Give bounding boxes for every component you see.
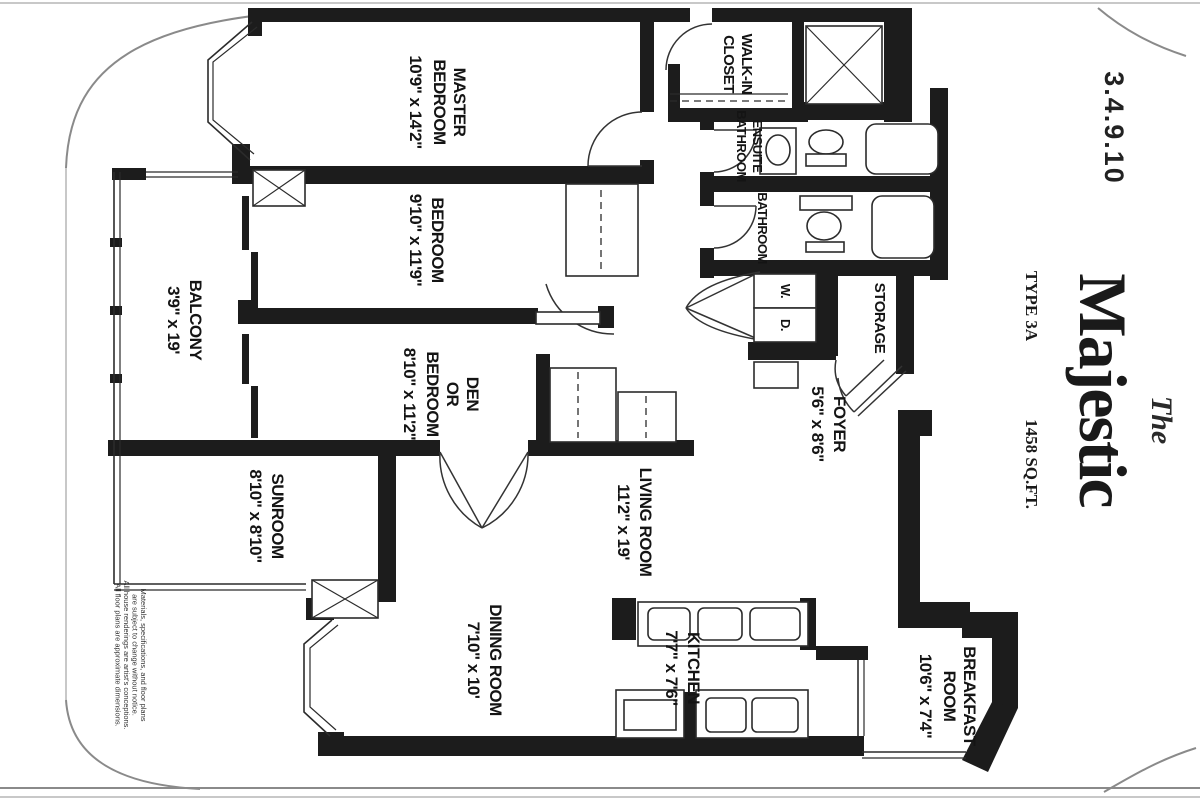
room-name-line: BALCONY — [186, 280, 205, 362]
room-name-line: BATHROOM — [734, 110, 749, 182]
master-bedroom-door-arc — [588, 112, 642, 166]
bathroom-tub — [872, 196, 934, 258]
room-name-line: BEDROOM — [423, 351, 442, 437]
kitchen-appliance-4 — [706, 698, 746, 732]
hall-partition — [536, 312, 600, 324]
brand-name-text: Majestic — [1065, 273, 1141, 507]
room-label-bedroom: BEDROOM 9'10" x 11'9" — [406, 194, 447, 286]
room-label-den: DEN OR BEDROOM 8'10" x 11'2" — [400, 348, 482, 440]
bathroom-door-arc — [714, 206, 756, 248]
room-label-dining-room: DINING ROOM 7'10" x 10' — [464, 604, 505, 716]
room-label-storage: STORAGE — [871, 283, 888, 354]
kitchen-appliance-3 — [750, 608, 800, 640]
unit-numbers: 3.4.9.10 — [1099, 71, 1129, 185]
room-name-line: FOYER — [830, 396, 849, 452]
ensuite-toilet-tank — [806, 154, 846, 166]
unit-numbers-text: 3.4.9.10 — [1099, 71, 1129, 185]
room-label-balcony: BALCONY 3'9" x 19' — [164, 280, 205, 362]
room-label-ensuite-bathroom: ENSUITE BATHROOM — [734, 110, 765, 182]
room-name-line: DEN — [463, 377, 482, 412]
room-name-line: MASTER — [450, 68, 469, 137]
den-french-door-leaf-right — [482, 452, 528, 528]
room-name-line: SUNROOM — [268, 473, 287, 559]
bathroom-vanity — [800, 196, 852, 210]
floor-plan-page: MASTER BEDROOM 10'9" x 14'2" BEDROOM 9'1… — [0, 0, 1200, 805]
room-dims: 8'10" x 8'10" — [246, 469, 265, 562]
plan-area: 1458 SQ.FT. — [1022, 419, 1041, 509]
room-label-master-bedroom: MASTER BEDROOM 10'9" x 14'2" — [406, 55, 469, 148]
plan-type: TYPE 3A — [1022, 271, 1041, 342]
brand-the: The — [1145, 396, 1178, 444]
ensuite-sink — [766, 135, 790, 165]
living-double-door-leaf-bottom — [686, 308, 760, 340]
room-name-line: STORAGE — [871, 283, 888, 354]
corner-arc-bottom-right — [1104, 748, 1196, 792]
floor-plan-drawing: MASTER BEDROOM 10'9" x 14'2" BEDROOM 9'1… — [0, 0, 1200, 805]
room-dims: 7'10" x 10' — [464, 622, 483, 699]
washer-text: W. — [778, 284, 793, 298]
bedroom-closet — [566, 184, 638, 276]
room-name-line: BEDROOM — [430, 59, 449, 145]
bathroom-toilet-tank — [806, 242, 844, 252]
linen-closet-2 — [618, 392, 676, 442]
room-label-sunroom: SUNROOM 8'10" x 8'10" — [246, 469, 287, 562]
room-name-line: BREAKFAST — [960, 646, 979, 747]
room-label-foyer: FOYER 5'6" x 8'6" — [808, 386, 849, 461]
kitchen-appliance-2 — [698, 608, 742, 640]
bay-window-master-outer — [208, 22, 252, 160]
plan-type-text: TYPE 3A — [1022, 271, 1041, 342]
room-name-line: BATHROOM — [755, 192, 770, 264]
bay-window-master-inner — [213, 27, 257, 154]
title-block: 3.4.9.10 TYPE 3A Majestic The 1458 SQ.FT… — [1022, 71, 1178, 509]
room-label-breakfast-room: BREAKFAST ROOM 10'6" x 7'4" — [916, 646, 979, 747]
room-name-line: KITCHEN — [684, 632, 703, 704]
plan-area-text: 1458 SQ.FT. — [1022, 419, 1041, 509]
dryer-text: D. — [778, 319, 793, 331]
dryer-label: D. — [778, 319, 793, 331]
room-name-line: ENSUITE — [750, 120, 765, 174]
room-name-line: WALK-IN — [738, 34, 755, 95]
room-dims: 3'9" x 19' — [164, 286, 183, 354]
washer-label: W. — [778, 284, 793, 298]
room-dims: 9'10" x 11'9" — [406, 194, 425, 286]
brand-name: Majestic — [1065, 273, 1141, 507]
fixtures — [253, 26, 938, 738]
dining-bay-window-inner — [310, 625, 338, 730]
storage-door-leaf — [846, 360, 884, 396]
brand-the-text: The — [1145, 396, 1178, 444]
walk-in-closet-door-arc — [666, 24, 712, 70]
room-name-line: BEDROOM — [428, 197, 447, 283]
corner-arc-top-left — [66, 9, 352, 168]
dining-bay-window-outer — [304, 620, 332, 736]
room-name-line: ROOM — [940, 671, 959, 722]
room-dims: 10'9" x 14'2" — [406, 55, 425, 148]
room-name-line: LIVING ROOM — [636, 468, 655, 577]
kitchen-appliance-5 — [752, 698, 798, 732]
corner-arc-top-right — [1098, 8, 1186, 56]
room-name-line: CLOSET — [720, 35, 737, 93]
bathroom-toilet-bowl — [807, 212, 841, 240]
room-dims: 10'6" x 7'4" — [916, 654, 935, 738]
living-double-door-leaf-top — [686, 272, 760, 308]
room-label-living-room: LIVING ROOM 11'2" x 19' — [614, 468, 655, 577]
disclaimer: Materials, specifications, and floor pla… — [114, 580, 149, 729]
entry-door-leaf — [854, 366, 902, 412]
disclaimer-line: All floor plans are approximate dimensio… — [114, 583, 123, 726]
room-label-bathroom: BATHROOM — [755, 192, 770, 264]
room-label-walk-in-closet: WALK-IN CLOSET — [720, 34, 755, 95]
room-name-line: DINING ROOM — [486, 604, 505, 716]
foyer-niche — [754, 362, 798, 388]
ensuite-tub — [866, 124, 938, 174]
room-dims: 5'6" x 8'6" — [808, 386, 827, 461]
linen-closet-1 — [550, 368, 616, 442]
room-dims: 11'2" x 19' — [614, 484, 633, 560]
room-dims: 7'7" x 7'6" — [662, 630, 681, 705]
room-name-line: OR — [443, 382, 462, 407]
ensuite-toilet-bowl — [809, 130, 843, 154]
room-dims: 8'10" x 11'2" — [400, 348, 419, 440]
